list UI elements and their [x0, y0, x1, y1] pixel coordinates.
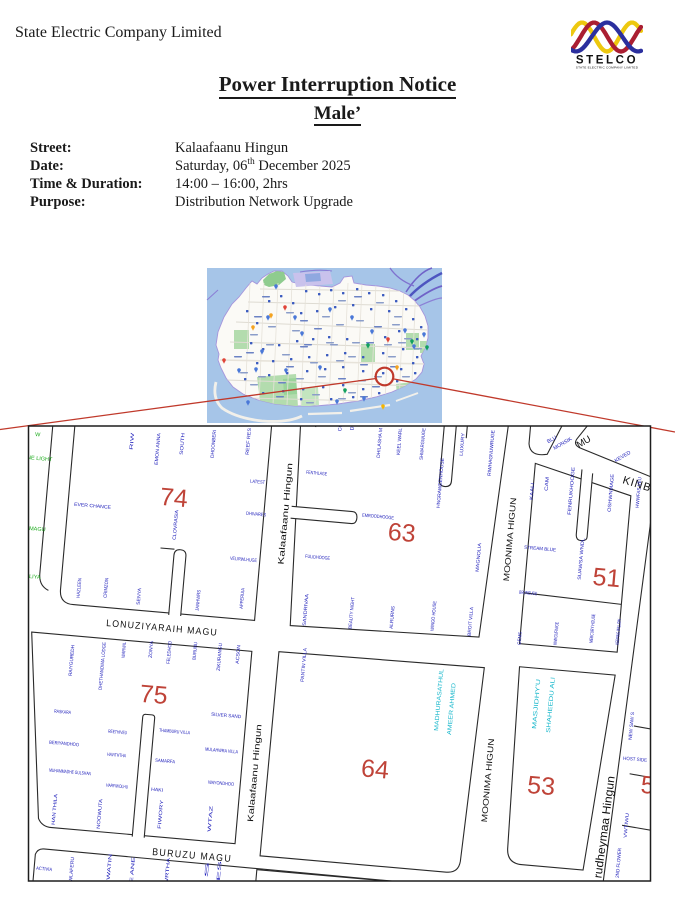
svg-text:CAM: CAM — [544, 477, 551, 491]
svg-text:HAKI: HAKI — [151, 787, 163, 794]
svg-text:74: 74 — [159, 483, 189, 513]
svg-text:GEMS: GEMS — [517, 632, 524, 645]
svg-text:64: 64 — [360, 754, 390, 784]
svg-text:MOONIMA HIGUN: MOONIMA HIGUN — [480, 738, 496, 823]
svg-text:MOONIMA HIGUN: MOONIMA HIGUN — [502, 497, 518, 582]
svg-text:LIYA: LIYA — [29, 574, 41, 581]
svg-text:NE LIGHT: NE LIGHT — [27, 455, 53, 463]
svg-text:MAGU: MAGU — [29, 526, 46, 533]
svg-text:75: 75 — [139, 680, 169, 710]
svg-text:51: 51 — [592, 563, 622, 593]
svg-text:W: W — [35, 432, 42, 439]
svg-text:50: 50 — [640, 771, 670, 801]
svg-text:Kalaafaanu Hingun: Kalaafaanu Hingun — [245, 723, 264, 822]
svg-text:LONUZIYARAIH MAGU: LONUZIYARAIH MAGU — [106, 618, 219, 639]
svg-text:CO: CO — [337, 423, 344, 431]
svg-text:53: 53 — [526, 771, 556, 801]
svg-text:63: 63 — [387, 518, 417, 548]
